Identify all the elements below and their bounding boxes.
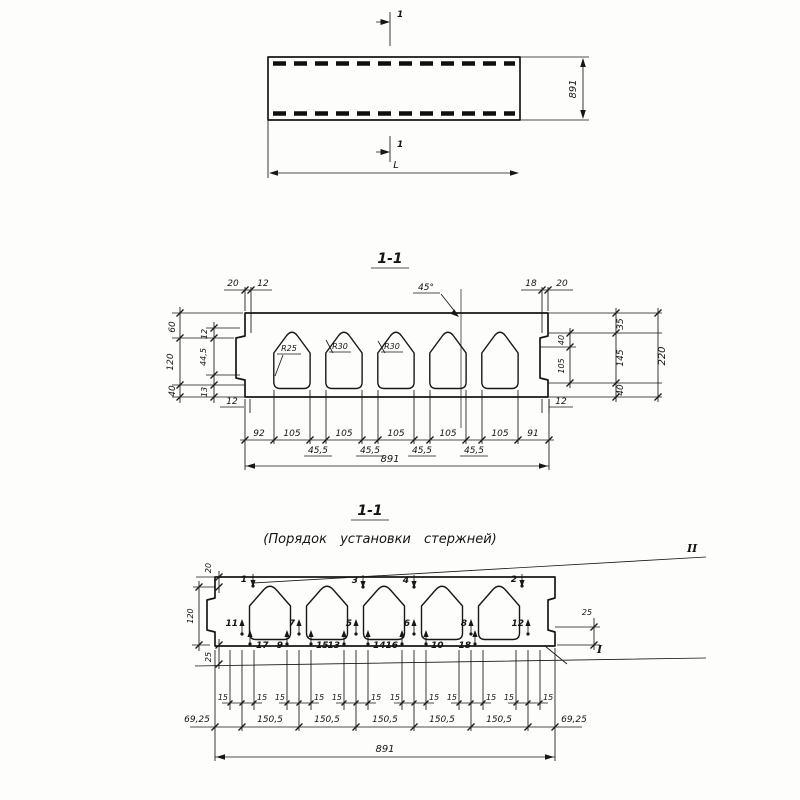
bar-number: 12 bbox=[511, 619, 524, 629]
radius-label: R25 bbox=[281, 344, 297, 353]
dim-label: 15 bbox=[218, 693, 228, 702]
slab-drawing: 1 1 L 891 1-1 45° R25 R30 R30 20 12 18 2… bbox=[0, 0, 800, 800]
total-width-label: 891 bbox=[380, 454, 399, 465]
dim-label: 25 bbox=[582, 608, 592, 617]
hollow-cores bbox=[274, 332, 518, 388]
bars-left-dims: 20 120 25 bbox=[186, 563, 223, 669]
bars-title: 1-1 bbox=[357, 503, 382, 519]
dim-label: 15 bbox=[371, 693, 381, 702]
dim-label: 92 bbox=[253, 429, 265, 439]
dim-label: 40 bbox=[557, 335, 566, 345]
plan-view: 1 1 L 891 bbox=[268, 10, 589, 178]
dim-label: 15 bbox=[332, 693, 342, 702]
length-dim-label: L bbox=[393, 160, 399, 171]
dim-label: 45,5 bbox=[464, 446, 484, 456]
radius-label: R30 bbox=[384, 342, 400, 351]
bars-right-dims: 25 bbox=[555, 608, 600, 650]
dim-label: 45,5 bbox=[360, 446, 380, 456]
bar-number: 6 bbox=[404, 619, 410, 629]
angle-label: 45° bbox=[418, 283, 434, 293]
dim-label: 91 bbox=[527, 429, 538, 439]
dim-label: 40 bbox=[616, 384, 626, 396]
dim-label: 15 bbox=[257, 693, 267, 702]
top-wall-dims: 20 12 18 20 bbox=[224, 279, 573, 333]
bar-number: 13 bbox=[327, 641, 340, 651]
hollow-cores-2 bbox=[250, 586, 520, 639]
dim-label: 120 bbox=[186, 608, 195, 623]
level-top-label: II bbox=[686, 542, 698, 555]
dim-label: 40 bbox=[168, 385, 178, 397]
dim-label: 105 bbox=[283, 429, 300, 439]
slab-plan-outline bbox=[268, 57, 520, 120]
section-mark-top-label: 1 bbox=[397, 10, 403, 20]
bar-number: 5 bbox=[346, 619, 352, 629]
dim-label: 150,5 bbox=[257, 715, 283, 725]
dim-label: 150,5 bbox=[429, 715, 455, 725]
dim-label: 150,5 bbox=[372, 715, 398, 725]
dim-label: 15 bbox=[486, 693, 496, 702]
dim-label: 15 bbox=[390, 693, 400, 702]
dim-label: 15 bbox=[314, 693, 324, 702]
dim-label: 105 bbox=[557, 358, 566, 373]
dim-label: 45,5 bbox=[412, 446, 432, 456]
plan-width-dim-label: 891 bbox=[568, 79, 579, 98]
dim-label: 35 bbox=[616, 318, 626, 330]
dim-label: 150,5 bbox=[314, 715, 340, 725]
section-view: 1-1 45° R25 R30 R30 20 12 18 20 bbox=[166, 251, 668, 470]
bar-number: 3 bbox=[352, 576, 358, 586]
bars-view: 1-1 (Порядок установки стержней) II I 1 … bbox=[184, 503, 706, 761]
plan-dimension-lines bbox=[268, 12, 589, 178]
dim-label: 60 bbox=[168, 321, 178, 333]
bar-number: 8 bbox=[461, 619, 467, 629]
dim-label: 20 bbox=[556, 279, 568, 289]
dim-label: 15 bbox=[429, 693, 439, 702]
dim-label: 105 bbox=[491, 429, 508, 439]
bar-number: 7 bbox=[289, 619, 296, 629]
dim-label: 15 bbox=[447, 693, 457, 702]
bar-number: 9 bbox=[277, 641, 283, 651]
bar-number: 10 bbox=[431, 641, 444, 651]
radius-label: R30 bbox=[332, 342, 348, 351]
dim-label: 105 bbox=[335, 429, 352, 439]
bar-number: 2 bbox=[511, 575, 517, 585]
dim-label: 20 bbox=[204, 563, 213, 573]
dim-label: 105 bbox=[387, 429, 404, 439]
dim-label: 12 bbox=[257, 279, 269, 289]
bottom-wall-dims: 12 12 bbox=[220, 397, 573, 413]
section-title: 1-1 bbox=[377, 251, 402, 267]
section-bottom-dims: 92 105 105 105 105 105 91 45,5 45,5 45,5… bbox=[240, 390, 554, 470]
bar-number: 11 bbox=[225, 619, 238, 629]
bars-subtitle: (Порядок установки стержней) bbox=[263, 532, 496, 547]
dim-label: 13 bbox=[200, 387, 209, 397]
dim-label: 44,5 bbox=[199, 348, 208, 366]
dim-label: 20 bbox=[227, 279, 239, 289]
dim-label: 45,5 bbox=[308, 446, 328, 456]
dim-label: 12 bbox=[555, 397, 567, 407]
bar-number: 16 bbox=[385, 641, 398, 651]
bar-number: 4 bbox=[402, 576, 409, 586]
dim-label: 25 bbox=[204, 652, 213, 662]
bar-pins bbox=[239, 574, 530, 644]
dim-label: 69,25 bbox=[561, 715, 587, 725]
mesh-level-lines bbox=[195, 557, 706, 666]
left-dim-chains: 60 120 40 12 44,5 13 bbox=[166, 307, 245, 403]
angle-leader bbox=[413, 293, 456, 313]
right-dim-chains: 40 105 35 145 40 220 bbox=[540, 308, 668, 402]
hidden-core-edges bbox=[273, 64, 515, 114]
blueprint-canvas: 1 1 L 891 1-1 45° R25 R30 R30 20 12 18 2… bbox=[0, 0, 800, 800]
total-width-label: 891 bbox=[375, 744, 394, 755]
dim-label: 15 bbox=[275, 693, 285, 702]
dim-label: 18 bbox=[525, 279, 537, 289]
section-mark-bottom-label: 1 bbox=[397, 140, 403, 150]
bar-number: 18 bbox=[458, 641, 471, 651]
bar-number: 14 bbox=[373, 641, 386, 651]
dim-label: 150,5 bbox=[486, 715, 512, 725]
dim-label: 12 bbox=[226, 397, 238, 407]
dim-label: 15 bbox=[504, 693, 514, 702]
dim-label: 69,25 bbox=[184, 715, 210, 725]
bar-number: 17 bbox=[256, 641, 269, 651]
dim-label: 120 bbox=[166, 353, 176, 370]
dim-label: 105 bbox=[439, 429, 456, 439]
bar-number: 1 bbox=[241, 575, 247, 585]
dim-label: 220 bbox=[657, 346, 668, 365]
dim-label: 15 bbox=[543, 693, 553, 702]
dim-label: 12 bbox=[200, 329, 209, 339]
dim-label: 145 bbox=[616, 349, 626, 366]
